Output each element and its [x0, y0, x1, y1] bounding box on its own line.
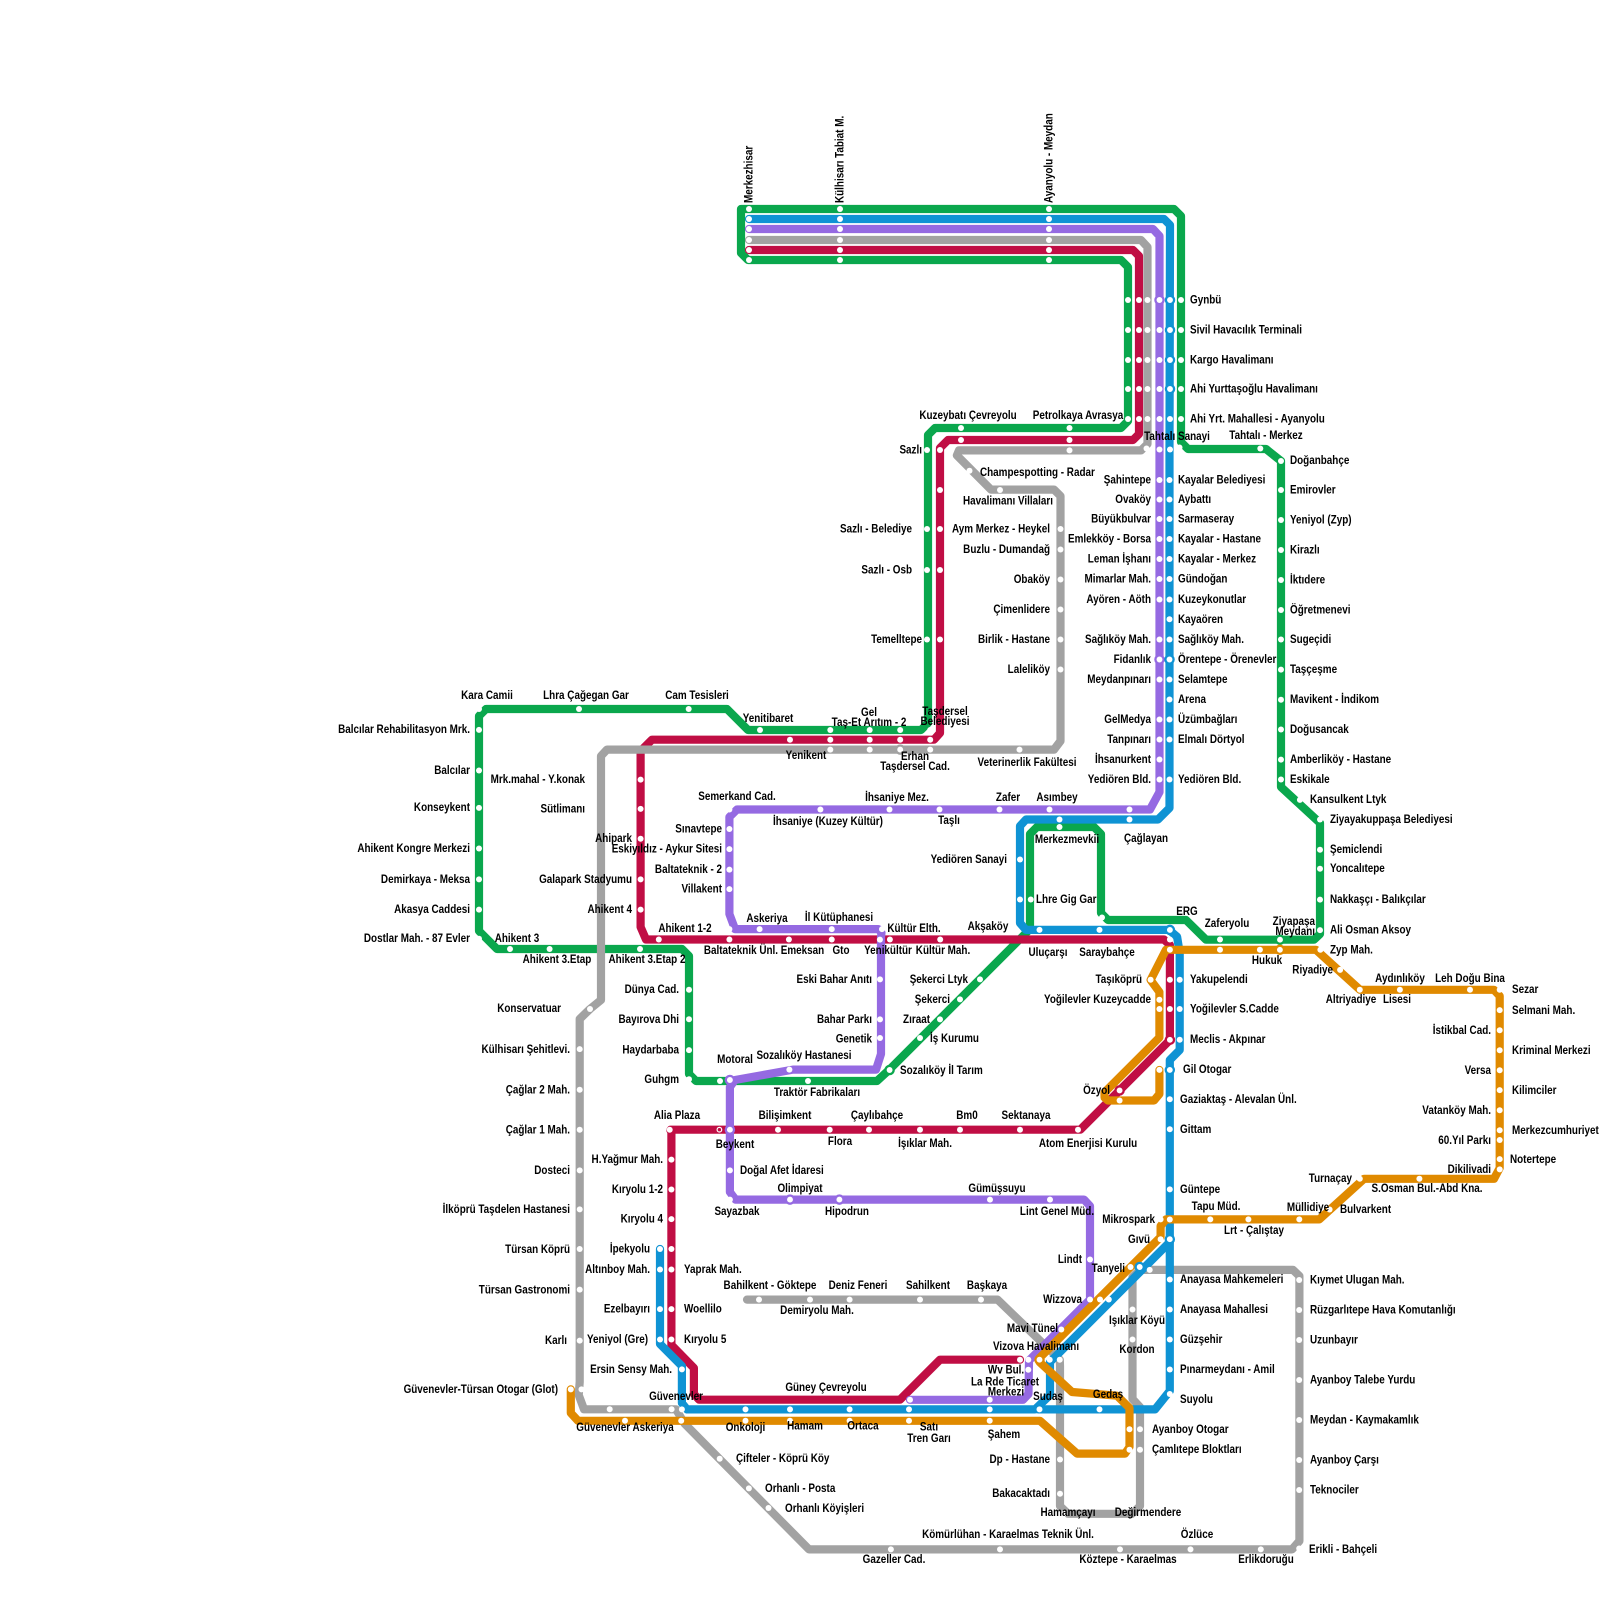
svg-text:Sarmaseray: Sarmaseray	[1178, 513, 1234, 526]
svg-text:Traktör Fabrikaları: Traktör Fabrikaları	[774, 1086, 860, 1099]
svg-text:İşıklar Mah.: İşıklar Mah.	[898, 1136, 952, 1150]
svg-text:Mrk.mahal - Y.konak: Mrk.mahal - Y.konak	[491, 773, 586, 786]
svg-text:Champespotting - Radar: Champespotting - Radar	[980, 466, 1096, 479]
svg-text:Çağlar 2 Mah.: Çağlar 2 Mah.	[506, 1084, 570, 1097]
svg-text:Orhanlı Köyişleri: Orhanlı Köyişleri	[785, 1502, 864, 1515]
svg-text:Hamamçayı: Hamamçayı	[1041, 1506, 1096, 1519]
svg-text:Askeriya: Askeriya	[746, 912, 788, 925]
svg-text:Galapark Stadyumu: Galapark Stadyumu	[539, 873, 632, 886]
svg-text:Sayazbak: Sayazbak	[714, 1205, 760, 1218]
svg-text:Yediören Bld.: Yediören Bld.	[1178, 773, 1241, 786]
svg-text:Çifteler - Köprü Köy: Çifteler - Köprü Köy	[736, 1452, 829, 1465]
svg-text:Uzunbayır: Uzunbayır	[1310, 1334, 1359, 1347]
svg-text:Yenitibaret: Yenitibaret	[743, 712, 794, 725]
svg-text:Obaköy: Obaköy	[1014, 573, 1050, 586]
svg-text:Baltateknik Ünl. Emeksan: Baltateknik Ünl. Emeksan	[704, 943, 824, 957]
svg-text:Sozalıköy Hastanesi: Sozalıköy Hastanesi	[756, 1049, 851, 1062]
svg-text:Konseykent: Konseykent	[414, 801, 470, 814]
svg-text:Rüzgarlıtepe Hava Komutanlığı: Rüzgarlıtepe Hava Komutanlığı	[1310, 1304, 1456, 1317]
svg-text:Altriyadiye: Altriyadiye	[1326, 993, 1377, 1006]
svg-text:Yenikültür: Yenikültür	[864, 944, 913, 957]
svg-text:Atom Enerjisi Kurulu: Atom Enerjisi Kurulu	[1039, 1137, 1137, 1150]
svg-text:Ahi Yurttaşoğlu Havalimanı: Ahi Yurttaşoğlu Havalimanı	[1190, 383, 1318, 396]
svg-text:İpekyolu: İpekyolu	[610, 1242, 650, 1256]
svg-text:Yakupelendi: Yakupelendi	[1190, 973, 1248, 986]
svg-text:Dosteci: Dosteci	[534, 1164, 570, 1177]
svg-text:Taşlı: Taşlı	[938, 814, 960, 827]
svg-text:Nakkaşçı - Balıkçılar: Nakkaşçı - Balıkçılar	[1330, 893, 1426, 906]
svg-text:Leh Doğu Bina: Leh Doğu Bina	[1435, 972, 1506, 985]
svg-text:Temelltepe: Temelltepe	[871, 633, 922, 646]
svg-text:Sozalıköy İl Tarım: Sozalıköy İl Tarım	[900, 1063, 983, 1077]
svg-text:Işıklar Köyü: Işıklar Köyü	[1109, 1314, 1165, 1327]
svg-text:Dostlar Mah. - 87 Evler: Dostlar Mah. - 87 Evler	[364, 932, 471, 945]
svg-text:Mimarlar Mah.: Mimarlar Mah.	[1084, 573, 1151, 586]
svg-text:Bulvarkent: Bulvarkent	[1340, 1203, 1391, 1216]
svg-text:Taşıköprü: Taşıköprü	[1095, 973, 1142, 986]
svg-text:Tahtalı Sanayi: Tahtalı Sanayi	[1144, 430, 1210, 443]
svg-text:Ahikent 3: Ahikent 3	[495, 932, 540, 945]
svg-text:İl Kütüphanesi: İl Kütüphanesi	[805, 910, 873, 924]
svg-text:Lhra Çağegan Gar: Lhra Çağegan Gar	[543, 689, 629, 702]
svg-text:Mavi Tünel: Mavi Tünel	[1007, 1322, 1058, 1335]
svg-text:Öğretmenevi: Öğretmenevi	[1290, 603, 1350, 617]
svg-text:Meydanı: Meydanı	[1275, 925, 1315, 938]
svg-text:Buzlu - Dumandağ: Buzlu - Dumandağ	[963, 543, 1050, 556]
svg-text:Gündoğan: Gündoğan	[1178, 573, 1227, 586]
svg-text:Ali Osman Aksoy: Ali Osman Aksoy	[1330, 924, 1411, 937]
svg-text:Flora: Flora	[828, 1135, 853, 1148]
svg-text:Gümüşsuyu: Gümüşsuyu	[968, 1182, 1025, 1195]
svg-text:Selmani Mah.: Selmani Mah.	[1512, 1004, 1575, 1017]
svg-text:Ziyayakuppaşa Belediyesi: Ziyayakuppaşa Belediyesi	[1330, 813, 1453, 826]
svg-text:Bayırova Dhi: Bayırova Dhi	[619, 1013, 679, 1026]
svg-text:Laleliköy: Laleliköy	[1008, 663, 1050, 676]
svg-text:Arena: Arena	[1178, 693, 1207, 706]
svg-text:Sektanaya: Sektanaya	[1002, 1109, 1052, 1122]
svg-text:Bm0: Bm0	[956, 1109, 977, 1122]
svg-text:Ayanboy Talebe Yurdu: Ayanboy Talebe Yurdu	[1310, 1374, 1415, 1387]
svg-text:Woellilo: Woellilo	[684, 1303, 722, 1316]
svg-text:Kargo Havalimanı: Kargo Havalimanı	[1190, 354, 1274, 367]
svg-text:Tren Garı: Tren Garı	[907, 1432, 950, 1445]
svg-text:Kayalar Belediyesi: Kayalar Belediyesi	[1178, 474, 1265, 487]
svg-text:Yenikent: Yenikent	[786, 749, 827, 762]
svg-text:Türsan Gastronomi: Türsan Gastronomi	[479, 1284, 570, 1297]
svg-text:Güney Çevreyolu: Güney Çevreyolu	[785, 1381, 866, 1394]
svg-text:Havalimanı Villaları: Havalimanı Villaları	[963, 495, 1053, 508]
svg-text:Villakent: Villakent	[681, 883, 722, 896]
svg-text:Lint Genel Müd.: Lint Genel Müd.	[1020, 1205, 1094, 1218]
svg-text:Merkezi: Merkezi	[988, 1386, 1024, 1399]
svg-text:Birlik - Hastane: Birlik - Hastane	[978, 633, 1050, 646]
svg-text:Sudaş: Sudaş	[1033, 1390, 1063, 1403]
svg-text:Sağlıköy Mah.: Sağlıköy Mah.	[1085, 633, 1151, 646]
svg-text:S.Osman Bul.-Abd Kna.: S.Osman Bul.-Abd Kna.	[1371, 1182, 1482, 1195]
svg-text:Taşçeşme: Taşçeşme	[1290, 663, 1337, 676]
svg-text:Notertepe: Notertepe	[1510, 1153, 1556, 1166]
svg-text:Sezar: Sezar	[1512, 983, 1539, 996]
svg-text:Pınarmeydanı - Amil: Pınarmeydanı - Amil	[1180, 1363, 1275, 1376]
svg-text:Genetik: Genetik	[836, 1033, 873, 1046]
svg-text:Taşdersel Cad.: Taşdersel Cad.	[880, 760, 950, 773]
svg-text:Gto: Gto	[832, 944, 849, 957]
svg-text:Merkezcumhuriyet: Merkezcumhuriyet	[1512, 1124, 1599, 1137]
svg-text:Ahi Yrt. Mahallesi - Ayanyolu: Ahi Yrt. Mahallesi - Ayanyolu	[1190, 413, 1325, 426]
svg-text:Ahikent 3.Etap: Ahikent 3.Etap	[523, 953, 592, 966]
svg-text:Özyol: Özyol	[1083, 1083, 1110, 1097]
svg-text:Şekerci Ltyk: Şekerci Ltyk	[910, 973, 969, 986]
svg-text:Çamlıtepe Bloktları: Çamlıtepe Bloktları	[1152, 1443, 1242, 1456]
svg-text:Demiryolu Mah.: Demiryolu Mah.	[780, 1304, 854, 1317]
svg-text:Üzümbağları: Üzümbağları	[1178, 712, 1237, 726]
svg-text:Kömürlühan - Karaelmas Teknik: Kömürlühan - Karaelmas Teknik Ünl.	[922, 1527, 1094, 1541]
svg-text:Başkaya: Başkaya	[967, 1279, 1008, 1292]
svg-text:Orhanlı - Posta: Orhanlı - Posta	[765, 1482, 836, 1495]
svg-text:Ovaköy: Ovaköy	[1115, 493, 1151, 506]
svg-text:Dünya Cad.: Dünya Cad.	[625, 983, 679, 996]
svg-text:60.Yıl Parkı: 60.Yıl Parkı	[1438, 1134, 1491, 1147]
svg-text:Dp - Hastane: Dp - Hastane	[990, 1453, 1050, 1466]
svg-text:Kültür Elth.: Kültür Elth.	[887, 922, 940, 935]
svg-text:Belediyesi: Belediyesi	[921, 715, 970, 728]
svg-text:Yoğilevler Kuzeycadde: Yoğilevler Kuzeycadde	[1044, 993, 1151, 1006]
svg-text:Değirmendere: Değirmendere	[1115, 1506, 1182, 1519]
svg-text:Ahikent 3.Etap 2: Ahikent 3.Etap 2	[609, 953, 686, 966]
svg-text:Doğusancak: Doğusancak	[1290, 723, 1350, 736]
svg-text:Lhre Gig Gar: Lhre Gig Gar	[1036, 893, 1097, 906]
svg-text:Çağlayan: Çağlayan	[1124, 832, 1168, 845]
svg-text:Ezelbayırı: Ezelbayırı	[604, 1303, 650, 1316]
svg-text:Meclis - Akpınar: Meclis - Akpınar	[1190, 1033, 1266, 1046]
svg-text:Sivil Havacılık Terminali: Sivil Havacılık Terminali	[1190, 324, 1302, 337]
svg-text:Gynbü: Gynbü	[1190, 294, 1221, 307]
svg-text:İstikbal Cad.: İstikbal Cad.	[1433, 1023, 1491, 1037]
svg-text:Zaferyolu: Zaferyolu	[1205, 917, 1250, 930]
svg-text:Olimpiyat: Olimpiyat	[777, 1182, 822, 1195]
svg-text:Çimenlidere: Çimenlidere	[993, 603, 1050, 616]
svg-text:Erikli - Bahçeli: Erikli - Bahçeli	[1309, 1543, 1377, 1556]
svg-text:Köztepe - Karaelmas: Köztepe - Karaelmas	[1079, 1553, 1176, 1566]
svg-text:Anayasa Mahallesi: Anayasa Mahallesi	[1180, 1303, 1268, 1316]
svg-text:Sağlıköy Mah.: Sağlıköy Mah.	[1178, 633, 1244, 646]
svg-text:Sazlı - Osb: Sazlı - Osb	[861, 564, 912, 577]
svg-text:Ayanyolu - Meydan: Ayanyolu - Meydan	[1043, 113, 1056, 203]
svg-text:Selamtepe: Selamtepe	[1178, 673, 1227, 686]
svg-text:Tanpınarı: Tanpınarı	[1107, 733, 1151, 746]
svg-text:Büyükbulvar: Büyükbulvar	[1091, 513, 1152, 526]
svg-text:Bahilkent - Göktepe: Bahilkent - Göktepe	[724, 1279, 817, 1292]
svg-text:Kansulkent Ltyk: Kansulkent Ltyk	[1310, 793, 1387, 806]
svg-text:Ahikent 1-2: Ahikent 1-2	[658, 922, 711, 935]
svg-text:Emlekköy - Borsa: Emlekköy - Borsa	[1068, 533, 1152, 546]
svg-text:Erlikdoruğu: Erlikdoruğu	[1238, 1553, 1294, 1566]
svg-text:İlköprü Taşdelen Hastanesi: İlköprü Taşdelen Hastanesi	[443, 1202, 570, 1216]
svg-text:Sugeçidi: Sugeçidi	[1290, 633, 1331, 646]
svg-text:Lisesi: Lisesi	[1383, 993, 1411, 1006]
svg-text:Doğal Afet İdaresi: Doğal Afet İdaresi	[740, 1163, 824, 1177]
svg-text:Suyolu: Suyolu	[1180, 1393, 1213, 1406]
svg-text:Ahikent 4: Ahikent 4	[587, 903, 632, 916]
svg-text:Örentepe - Örenevler: Örentepe - Örenevler	[1178, 652, 1277, 666]
svg-text:Külhisarı Şehitlevi.: Külhisarı Şehitlevi.	[481, 1043, 570, 1056]
svg-text:Özlüce: Özlüce	[1181, 1527, 1213, 1541]
svg-text:Mavikent - İndikom: Mavikent - İndikom	[1290, 692, 1379, 706]
svg-text:Kordon: Kordon	[1119, 1343, 1154, 1356]
svg-text:Vatanköy Mah.: Vatanköy Mah.	[1422, 1104, 1491, 1117]
svg-text:İhsaniye (Kuzey Kültür): İhsaniye (Kuzey Kültür)	[773, 814, 883, 828]
svg-text:Aybattı: Aybattı	[1178, 493, 1211, 506]
svg-text:Tahtalı - Merkez: Tahtalı - Merkez	[1229, 429, 1303, 442]
svg-text:Meydan - Kaymakamlık: Meydan - Kaymakamlık	[1310, 1414, 1420, 1427]
svg-text:Asımbey: Asımbey	[1036, 791, 1077, 804]
svg-text:Kayalar - Hastane: Kayalar - Hastane	[1178, 533, 1261, 546]
svg-text:Wv Bul.: Wv Bul.	[988, 1364, 1024, 1377]
svg-text:Güvenevler Askeriya: Güvenevler Askeriya	[576, 1421, 674, 1434]
svg-text:Şemiclendi: Şemiclendi	[1330, 843, 1382, 856]
svg-text:Hukuk: Hukuk	[1252, 954, 1283, 967]
svg-text:Leman İşhanı: Leman İşhanı	[1088, 552, 1151, 566]
svg-text:Teknociler: Teknociler	[1310, 1484, 1359, 1497]
svg-text:Kara Camii: Kara Camii	[461, 689, 513, 702]
svg-text:Dikilivadi: Dikilivadi	[1448, 1163, 1491, 1176]
svg-text:Bakacaktadı: Bakacaktadı	[992, 1487, 1050, 1500]
svg-text:Turnaçay: Turnaçay	[1309, 1172, 1352, 1185]
svg-text:Ersin Sensy Mah.: Ersin Sensy Mah.	[590, 1363, 672, 1376]
svg-text:Lindt: Lindt	[1058, 1253, 1083, 1266]
svg-text:Konservatuar: Konservatuar	[497, 1002, 561, 1015]
svg-text:Yediören Sanayi: Yediören Sanayi	[931, 853, 1007, 866]
svg-text:Beykent: Beykent	[716, 1138, 755, 1151]
svg-text:Kıryolu 1-2: Kıryolu 1-2	[612, 1183, 663, 1196]
svg-text:Kıryolu 5: Kıryolu 5	[684, 1333, 726, 1346]
svg-text:Uluçarşı: Uluçarşı	[1028, 946, 1067, 959]
svg-text:Gil Otogar: Gil Otogar	[1183, 1063, 1232, 1076]
svg-text:ERG: ERG	[1176, 905, 1197, 918]
svg-text:Güvenevler-Türsan Otogar (Glot: Güvenevler-Türsan Otogar (Glot)	[404, 1383, 559, 1396]
svg-text:Kilimciler: Kilimciler	[1512, 1084, 1557, 1097]
svg-text:Fidanlık: Fidanlık	[1114, 653, 1152, 666]
svg-text:Kayalar - Merkez: Kayalar - Merkez	[1178, 553, 1257, 566]
svg-text:Kıymet Ulugan Mah.: Kıymet Ulugan Mah.	[1310, 1274, 1405, 1287]
svg-text:Guhgm: Guhgm	[644, 1073, 679, 1086]
svg-text:Yoğilevler S.Cadde: Yoğilevler S.Cadde	[1190, 1003, 1279, 1016]
svg-text:Zafer: Zafer	[996, 791, 1021, 804]
svg-text:Türsan Köprü: Türsan Köprü	[505, 1243, 570, 1256]
svg-text:Bahar Parkı: Bahar Parkı	[817, 1013, 872, 1026]
svg-text:Çaylıbahçe: Çaylıbahçe	[851, 1109, 903, 1122]
svg-text:Aydınlıköy: Aydınlıköy	[1375, 972, 1425, 985]
svg-text:Semerkand Cad.: Semerkand Cad.	[698, 790, 776, 803]
svg-text:Gıvü: Gıvü	[1128, 1233, 1150, 1246]
svg-text:Şahintepe: Şahintepe	[1104, 474, 1151, 487]
svg-text:Hamam: Hamam	[787, 1420, 823, 1433]
svg-text:Sınavtepe: Sınavtepe	[675, 823, 722, 836]
svg-text:Aym Merkez - Heykel: Aym Merkez - Heykel	[952, 523, 1050, 536]
svg-text:Balcılar: Balcılar	[434, 764, 470, 777]
svg-text:Cam Tesisleri: Cam Tesisleri	[665, 689, 729, 702]
svg-text:Güntepe: Güntepe	[1180, 1183, 1220, 1196]
svg-text:Güzşehir: Güzşehir	[1180, 1333, 1223, 1346]
svg-text:Saraybahçe: Saraybahçe	[1079, 946, 1135, 959]
svg-text:Petrolkaya Avrasya: Petrolkaya Avrasya	[1033, 409, 1124, 422]
svg-text:Wizzova: Wizzova	[1043, 1293, 1083, 1306]
svg-text:Riyadiye: Riyadiye	[1292, 964, 1333, 977]
svg-text:Amberliköy - Hastane: Amberliköy - Hastane	[1290, 753, 1391, 766]
svg-text:Şahem: Şahem	[988, 1428, 1020, 1441]
svg-text:Ortaca: Ortaca	[847, 1420, 879, 1433]
svg-text:Anayasa Mahkemeleri: Anayasa Mahkemeleri	[1180, 1273, 1283, 1286]
svg-text:Motoral: Motoral	[717, 1053, 753, 1066]
svg-text:Lrt - Çalıştay: Lrt - Çalıştay	[1224, 1224, 1284, 1237]
svg-text:Yeniyol (Gre): Yeniyol (Gre)	[587, 1333, 648, 1346]
svg-text:İhsaniye Mez.: İhsaniye Mez.	[865, 790, 929, 804]
svg-text:Mikrospark: Mikrospark	[1102, 1213, 1156, 1226]
svg-text:Akasya Caddesi: Akasya Caddesi	[394, 903, 470, 916]
svg-text:Demirkaya - Meksa: Demirkaya - Meksa	[381, 873, 471, 886]
svg-text:Yediören Bld.: Yediören Bld.	[1088, 773, 1151, 786]
svg-text:Sazlı - Belediye: Sazlı - Belediye	[840, 523, 912, 536]
svg-text:H.Yağmur Mah.: H.Yağmur Mah.	[592, 1153, 663, 1166]
svg-text:Emirovler: Emirovler	[1290, 484, 1336, 497]
svg-text:Eskiyıldız - Aykur Sitesi: Eskiyıldız - Aykur Sitesi	[612, 843, 722, 856]
svg-text:Eski Bahar Anıtı: Eski Bahar Anıtı	[797, 973, 872, 986]
svg-text:Yoncalıtepe: Yoncalıtepe	[1330, 862, 1385, 875]
svg-text:GelMedya: GelMedya	[1104, 713, 1152, 726]
svg-text:Sütlimanı: Sütlimanı	[540, 803, 585, 816]
svg-text:Şekerci: Şekerci	[915, 993, 950, 1006]
svg-text:Haydarbaba: Haydarbaba	[622, 1044, 680, 1057]
svg-text:Yeniyol (Zyp): Yeniyol (Zyp)	[1290, 514, 1352, 527]
svg-text:Alia Plaza: Alia Plaza	[654, 1109, 701, 1122]
svg-text:İş Kurumu: İş Kurumu	[930, 1031, 979, 1045]
svg-text:Bilişimkent: Bilişimkent	[759, 1109, 812, 1122]
svg-text:Balcılar Rehabilitasyon Mrk.: Balcılar Rehabilitasyon Mrk.	[338, 723, 470, 736]
svg-text:Gaziaktaş - Alevalan Ünl.: Gaziaktaş - Alevalan Ünl.	[1180, 1092, 1297, 1106]
svg-text:Onkoloji: Onkoloji	[726, 1421, 766, 1434]
svg-text:Kültür Mah.: Kültür Mah.	[916, 944, 970, 957]
svg-text:Ahikent Kongre Merkezi: Ahikent Kongre Merkezi	[357, 842, 470, 855]
svg-text:Vizova Havalimanı: Vizova Havalimanı	[993, 1340, 1079, 1353]
svg-text:Doğanbahçe: Doğanbahçe	[1290, 454, 1349, 467]
svg-text:Meydanpınarı: Meydanpınarı	[1087, 673, 1151, 686]
svg-text:Sazlı: Sazlı	[899, 444, 922, 457]
svg-text:Akşaköy: Akşaköy	[968, 920, 1009, 933]
svg-text:Külhisarı Tabiat M.: Külhisarı Tabiat M.	[834, 116, 847, 203]
svg-text:Gazeller Cad.: Gazeller Cad.	[863, 1553, 926, 1566]
svg-text:Merkezhisar: Merkezhisar	[743, 145, 756, 203]
svg-text:Ayanboy Çarşı: Ayanboy Çarşı	[1310, 1454, 1379, 1467]
svg-text:Çağlar 1 Mah.: Çağlar 1 Mah.	[506, 1124, 570, 1137]
svg-text:Güvenevler: Güvenevler	[649, 1390, 704, 1403]
svg-text:Taş-Et Arıtım - 2: Taş-Et Arıtım - 2	[832, 716, 907, 729]
svg-text:Kıryolu 4: Kıryolu 4	[621, 1213, 663, 1226]
svg-text:Merkezmevkii: Merkezmevkii	[1035, 833, 1099, 846]
svg-text:Gittam: Gittam	[1180, 1123, 1211, 1136]
svg-text:Zıraat: Zıraat	[903, 1013, 930, 1026]
svg-text:Hipodrun: Hipodrun	[825, 1205, 869, 1218]
svg-text:Tanyeli: Tanyeli	[1092, 1262, 1125, 1275]
svg-text:Ayanboy Otogar: Ayanboy Otogar	[1152, 1423, 1229, 1436]
svg-text:Deniz Feneri: Deniz Feneri	[829, 1279, 888, 1292]
svg-text:Kuzeykonutlar: Kuzeykonutlar	[1178, 593, 1247, 606]
svg-text:Karlı: Karlı	[545, 1334, 567, 1347]
svg-text:Müllidiye: Müllidiye	[1287, 1201, 1329, 1214]
svg-text:Altınboy Mah.: Altınboy Mah.	[585, 1263, 650, 1276]
svg-text:Baltateknik - 2: Baltateknik - 2	[655, 863, 722, 876]
svg-text:Versa: Versa	[1465, 1064, 1492, 1077]
svg-text:Gedaş: Gedaş	[1093, 1388, 1123, 1401]
svg-text:Zyp Mah.: Zyp Mah.	[1330, 944, 1373, 957]
svg-text:Sahilkent: Sahilkent	[906, 1279, 950, 1292]
svg-text:İktıdere: İktıdere	[1290, 573, 1325, 587]
svg-text:Tapu Müd.: Tapu Müd.	[1192, 1200, 1241, 1213]
svg-text:Kriminal Merkezi: Kriminal Merkezi	[1512, 1044, 1591, 1057]
svg-text:Kirazlı: Kirazlı	[1290, 544, 1320, 557]
svg-text:Yaprak Mah.: Yaprak Mah.	[684, 1263, 742, 1276]
svg-text:Kayaören: Kayaören	[1178, 613, 1223, 626]
svg-text:Elmalı Dörtyol: Elmalı Dörtyol	[1178, 733, 1245, 746]
svg-text:Eskikale: Eskikale	[1290, 773, 1330, 786]
svg-text:Veterinerlik Fakültesi: Veterinerlik Fakültesi	[978, 756, 1077, 769]
svg-text:Kuzeybatı Çevreyolu: Kuzeybatı Çevreyolu	[919, 409, 1016, 422]
svg-text:Ayören - Aöth: Ayören - Aöth	[1086, 593, 1151, 606]
svg-text:İhsanurkent: İhsanurkent	[1095, 752, 1151, 766]
